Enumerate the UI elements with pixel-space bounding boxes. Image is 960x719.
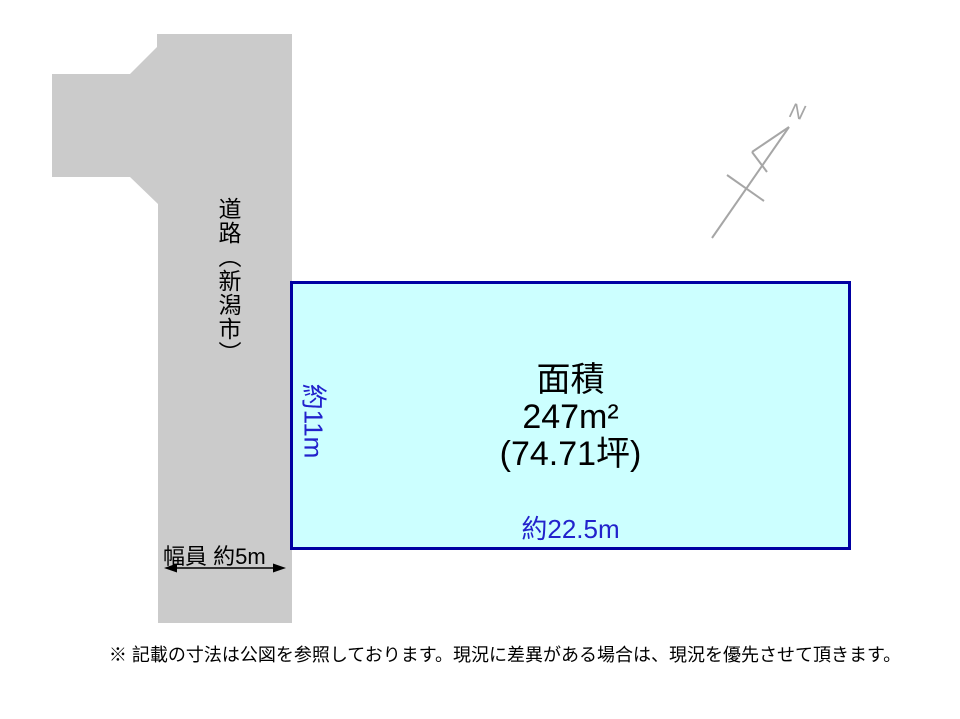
land-plot-diagram: N 道路（新潟市） 約11m 面積 247m² (74.71坪) 約22.5m … xyxy=(0,0,960,719)
parcel-area-m2: 247m² xyxy=(290,399,851,436)
parcel-area-tsubo: (74.71坪) xyxy=(290,436,851,473)
north-label: N xyxy=(787,99,808,125)
road-shape xyxy=(52,34,292,623)
north-arrow: N xyxy=(690,90,840,260)
north-arrow-lines xyxy=(712,127,789,238)
parcel-area-block: 面積 247m² (74.71坪) xyxy=(290,362,851,473)
parcel-frontage-label: 約22.5m xyxy=(290,509,851,546)
parcel-area-title: 面積 xyxy=(290,362,851,399)
footer-note: ※ 記載の寸法は公図を参照しております。現況に差異がある場合は、現況を優先させて… xyxy=(50,641,960,667)
road-label: 道路（新潟市） xyxy=(211,197,245,365)
road-width-arrow xyxy=(162,560,288,576)
